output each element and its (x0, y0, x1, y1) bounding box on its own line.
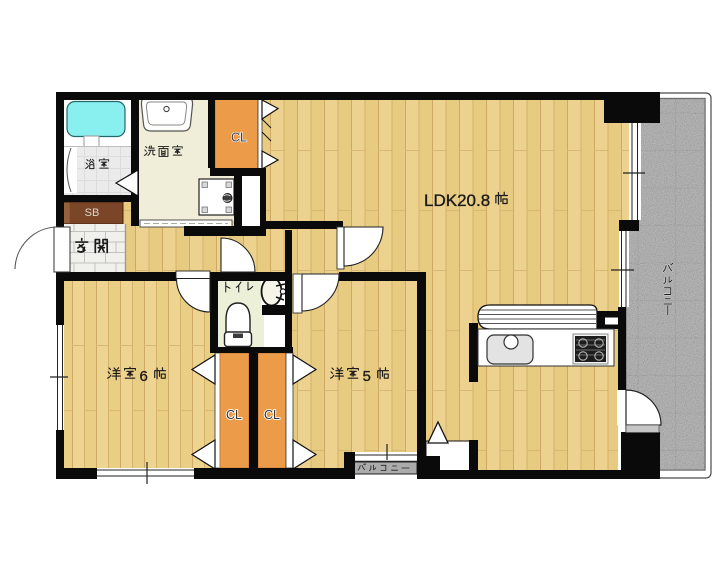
svg-text:SB: SB (85, 207, 100, 219)
svg-text:CL: CL (264, 408, 280, 422)
svg-text:CL: CL (231, 131, 247, 145)
svg-text:CL: CL (226, 408, 242, 422)
svg-text:6: 6 (140, 368, 148, 385)
svg-text:LDK20.8: LDK20.8 (424, 191, 490, 210)
svg-text:5: 5 (363, 368, 371, 385)
